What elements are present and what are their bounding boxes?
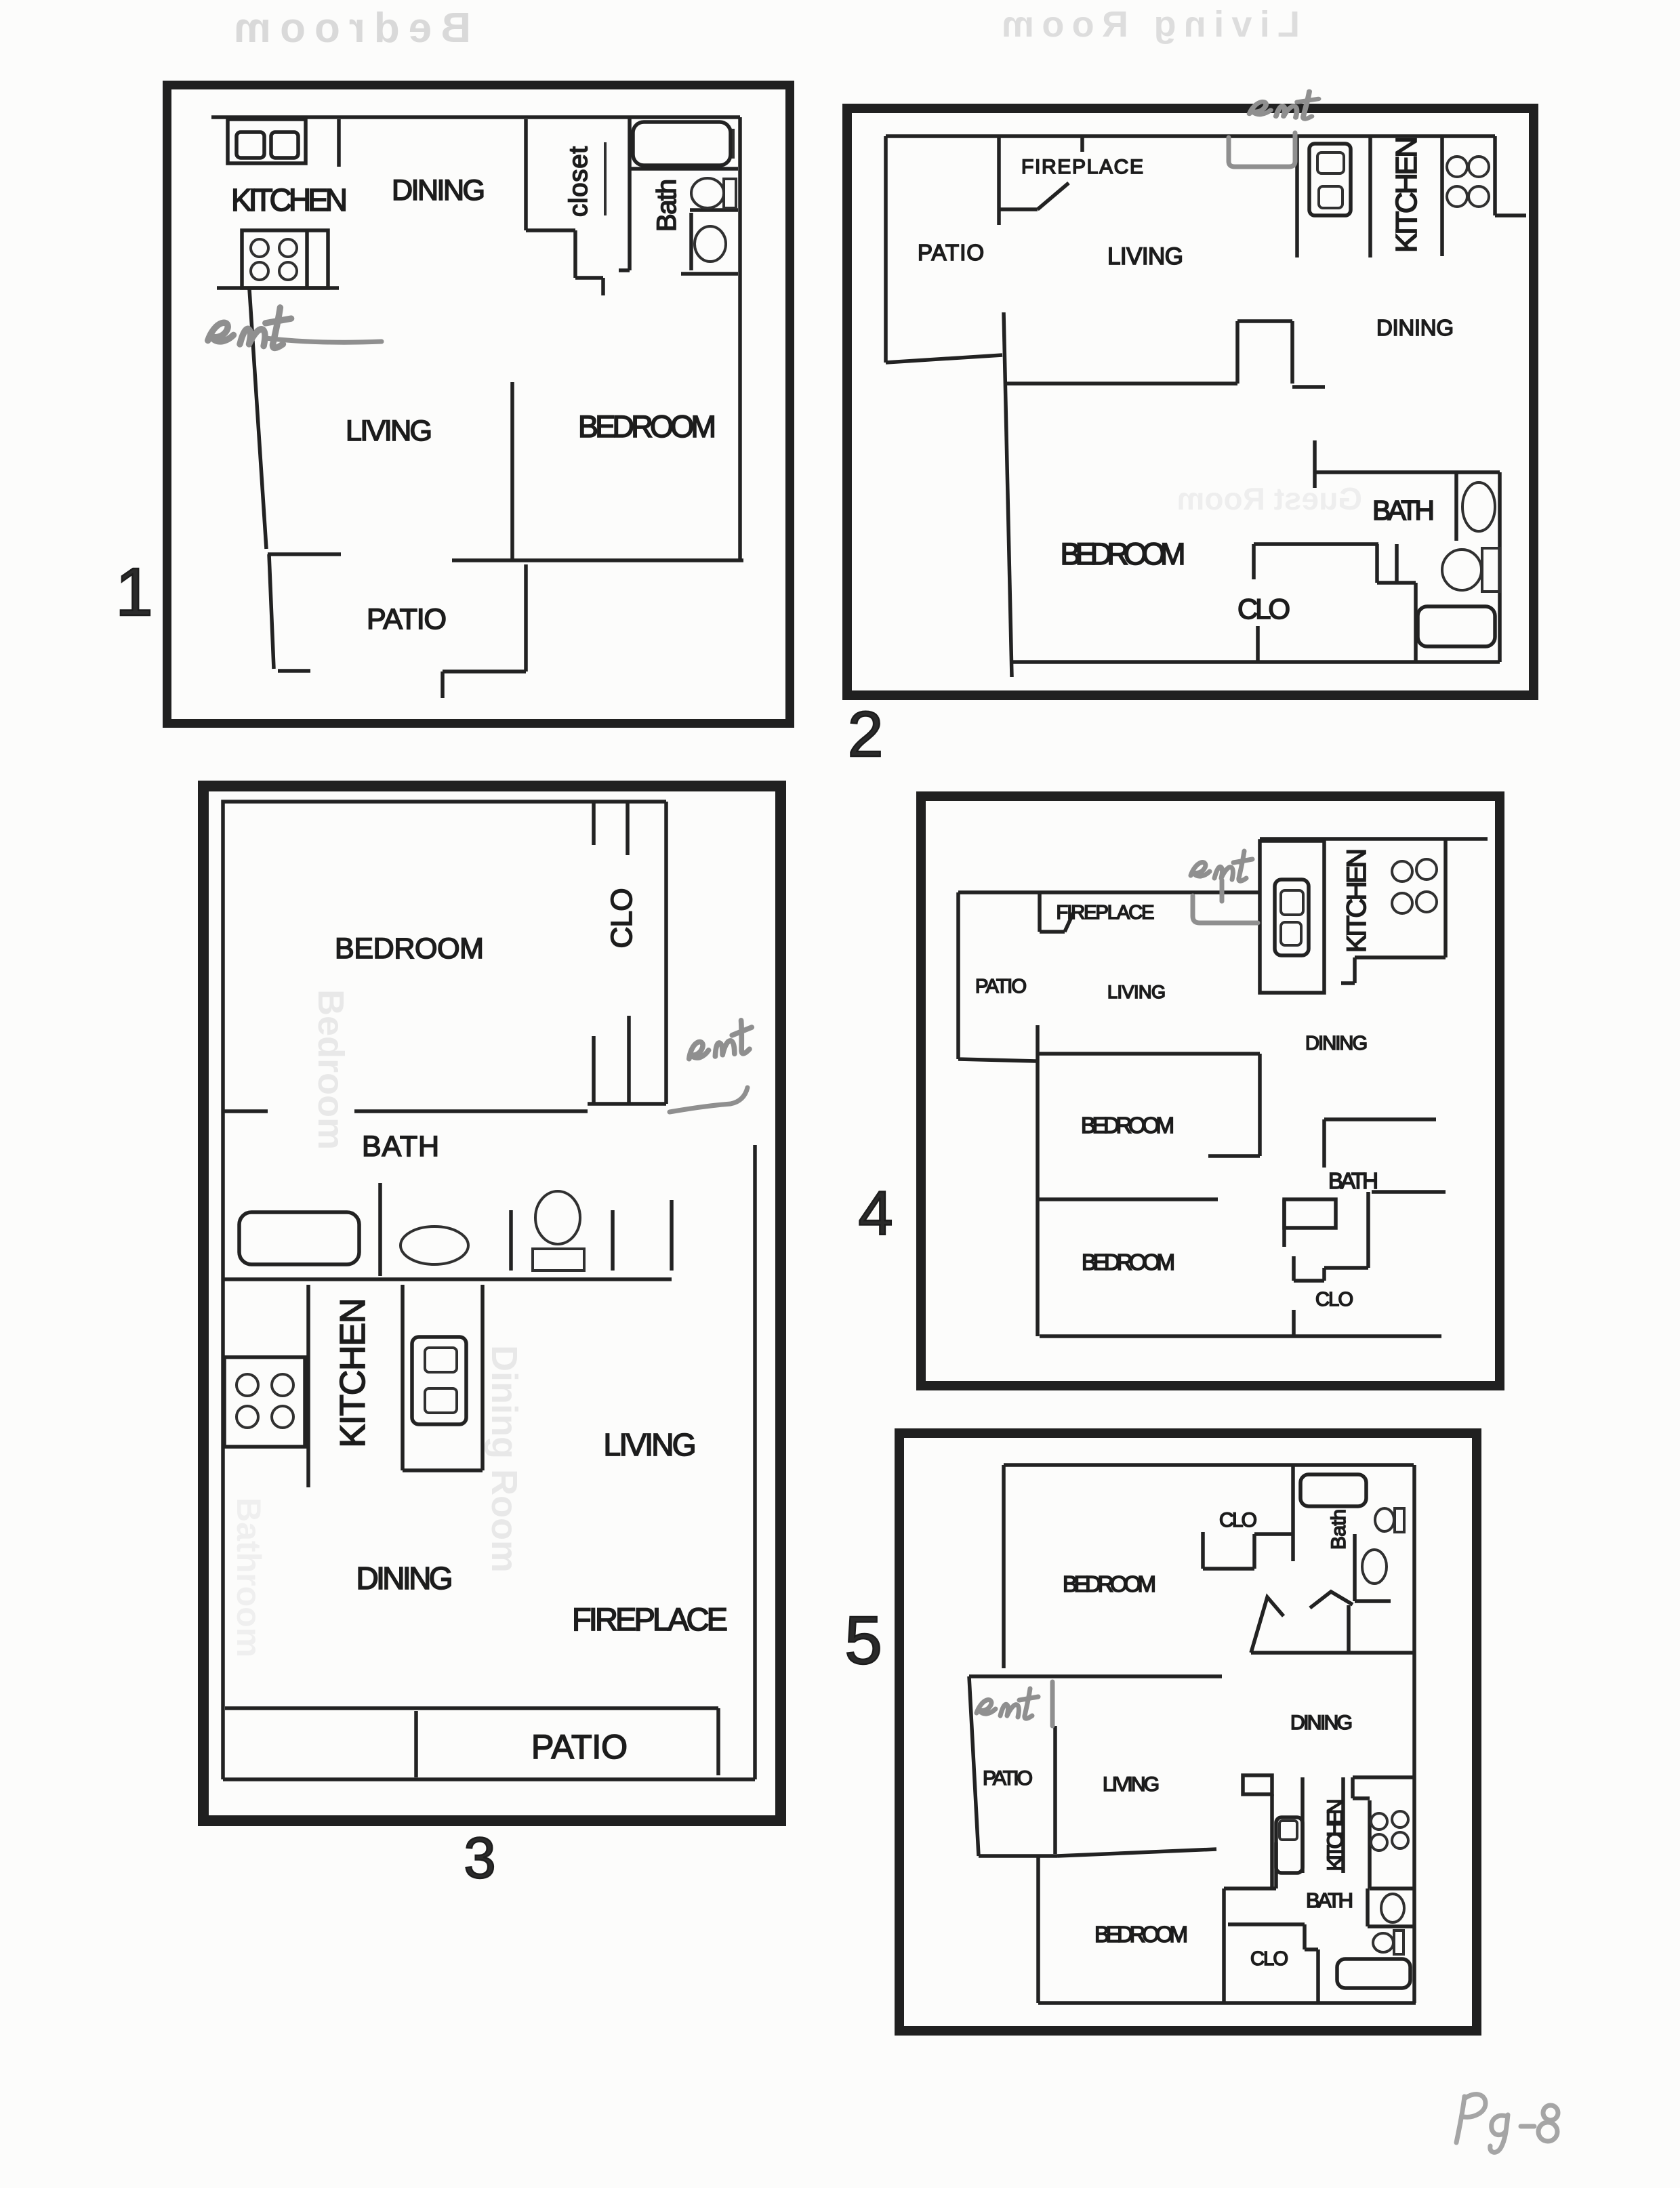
svg-text:closet: closet: [565, 146, 593, 217]
svg-text:5: 5: [844, 1603, 882, 1678]
svg-text:KITCHEN: KITCHEN: [231, 182, 348, 218]
svg-text:BEDROOM: BEDROOM: [578, 409, 716, 444]
svg-text:BEDROOM: BEDROOM: [335, 932, 484, 965]
svg-text:Bedroom: Bedroom: [310, 989, 351, 1150]
svg-text:FIREPLACE: FIREPLACE: [572, 1601, 728, 1637]
svg-text:Dining Room: Dining Room: [484, 1345, 525, 1573]
svg-text:BEDROOM: BEDROOM: [1081, 1113, 1174, 1138]
svg-text:Bathroom: Bathroom: [230, 1498, 268, 1657]
svg-text:LIVING: LIVING: [604, 1427, 697, 1462]
svg-text:1: 1: [115, 554, 153, 630]
svg-text:PATIO: PATIO: [918, 240, 984, 265]
svg-text:DINING: DINING: [356, 1561, 453, 1596]
svg-text:KITCHEN: KITCHEN: [333, 1298, 373, 1448]
svg-text:LIVING: LIVING: [1107, 982, 1166, 1002]
svg-text:KITCHEN: KITCHEN: [1323, 1799, 1347, 1872]
svg-text:PATIO: PATIO: [983, 1767, 1033, 1790]
svg-text:CLO: CLO: [605, 888, 638, 949]
svg-text:KITCHEN: KITCHEN: [1342, 848, 1372, 953]
svg-text:FIREPLACE: FIREPLACE: [1021, 156, 1143, 178]
svg-text:Bath: Bath: [652, 179, 682, 232]
svg-text:CLO: CLO: [1315, 1289, 1353, 1310]
svg-text:KITCHEN: KITCHEN: [1390, 136, 1423, 253]
svg-text:BATH: BATH: [1306, 1888, 1353, 1912]
svg-text:CLO: CLO: [1250, 1948, 1288, 1970]
svg-text:DINING: DINING: [1290, 1712, 1353, 1734]
svg-text:BEDROOM: BEDROOM: [1082, 1250, 1175, 1275]
svg-text:BEDROOM: BEDROOM: [1094, 1922, 1188, 1947]
svg-text:CLO: CLO: [1219, 1509, 1257, 1531]
svg-text:BATH: BATH: [1328, 1168, 1378, 1193]
svg-text:LIVING: LIVING: [1107, 243, 1183, 270]
svg-text:BEDROOM: BEDROOM: [1063, 1571, 1156, 1596]
svg-text:DINING: DINING: [392, 174, 485, 207]
svg-text:BATH: BATH: [362, 1130, 439, 1163]
svg-text:BEDROOM: BEDROOM: [1061, 537, 1186, 571]
svg-text:LIVING: LIVING: [1103, 1773, 1160, 1796]
svg-text:PATIO: PATIO: [367, 603, 447, 636]
svg-text:Guest Room: Guest Room: [1177, 481, 1362, 516]
svg-text:CLO: CLO: [1237, 593, 1290, 625]
svg-text:DINING: DINING: [1376, 315, 1454, 340]
svg-text:FIREPLACE: FIREPLACE: [1057, 902, 1155, 924]
svg-text:DINING: DINING: [1305, 1033, 1368, 1054]
svg-text:Bath: Bath: [1328, 1509, 1350, 1550]
svg-text:4: 4: [858, 1179, 893, 1248]
svg-text:2: 2: [848, 699, 884, 770]
svg-text:LIVING: LIVING: [346, 415, 432, 447]
svg-text:3: 3: [464, 1826, 495, 1891]
svg-text:PATIO: PATIO: [975, 976, 1027, 997]
svg-text:PATIO: PATIO: [531, 1728, 628, 1766]
svg-text:BATH: BATH: [1372, 495, 1435, 526]
